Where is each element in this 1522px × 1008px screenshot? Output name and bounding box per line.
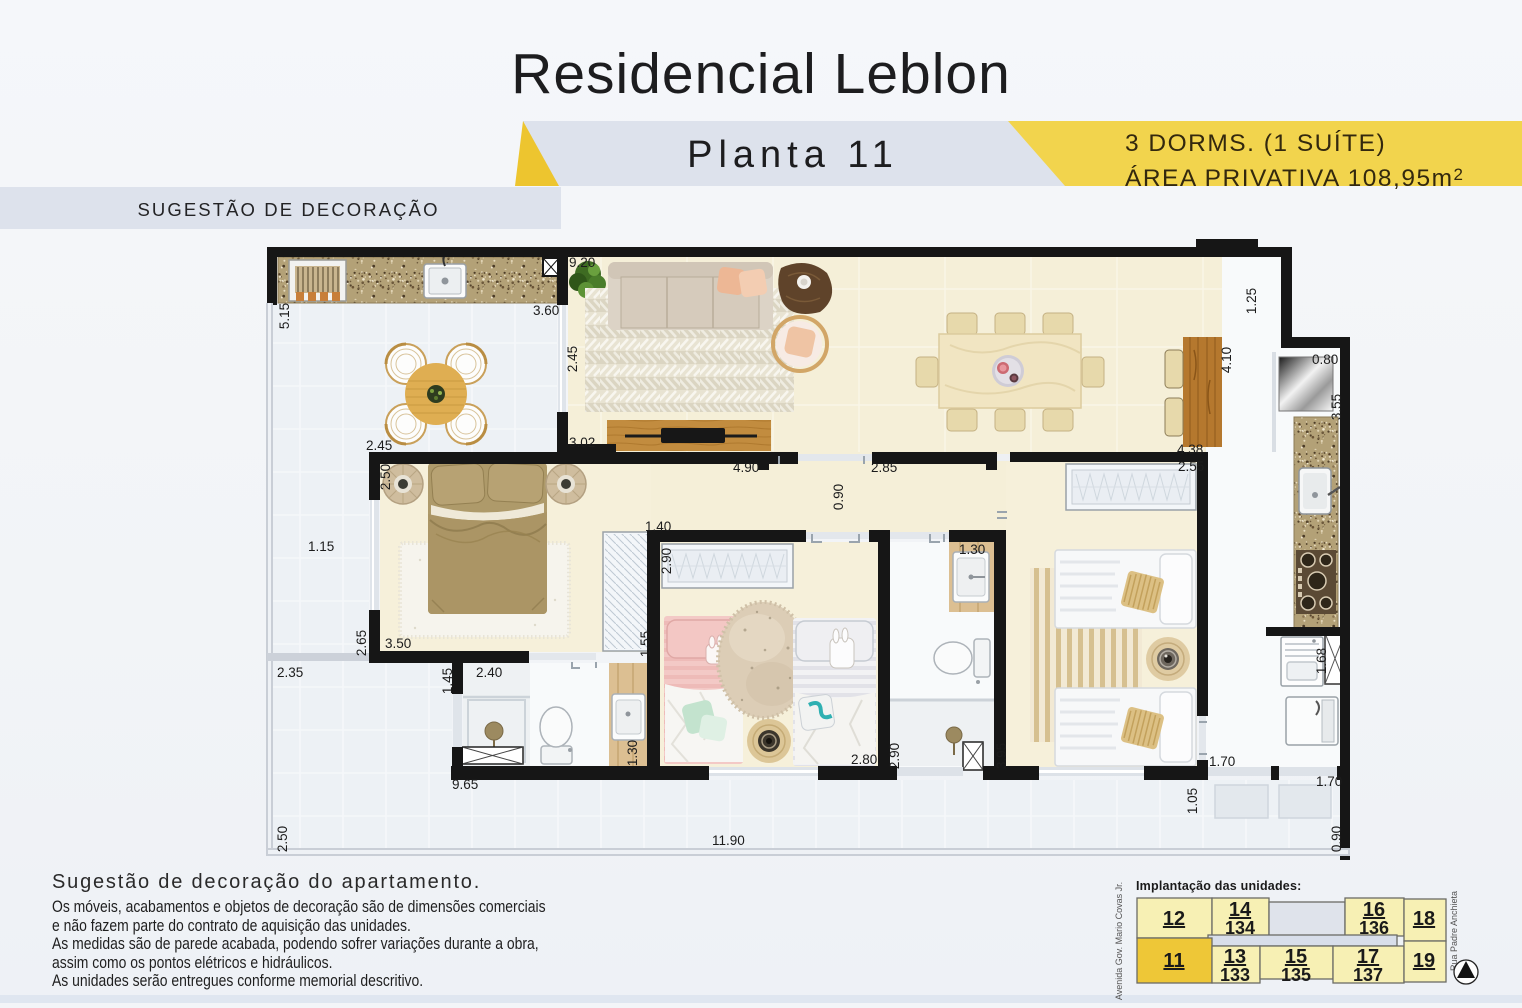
svg-text:18: 18 bbox=[1413, 908, 1435, 930]
svg-text:Rua Padre Anchieta: Rua Padre Anchieta bbox=[1449, 891, 1459, 971]
svg-text:137: 137 bbox=[1353, 965, 1383, 985]
svg-text:136: 136 bbox=[1359, 918, 1389, 938]
svg-text:11: 11 bbox=[1163, 950, 1184, 972]
svg-text:133: 133 bbox=[1220, 965, 1250, 985]
svg-text:Avenida Gov. Mario Covas Jr.: Avenida Gov. Mario Covas Jr. bbox=[1114, 882, 1124, 1000]
svg-text:135: 135 bbox=[1281, 965, 1311, 985]
svg-text:134: 134 bbox=[1225, 918, 1255, 938]
svg-text:12: 12 bbox=[1163, 908, 1185, 930]
svg-text:19: 19 bbox=[1413, 950, 1435, 972]
